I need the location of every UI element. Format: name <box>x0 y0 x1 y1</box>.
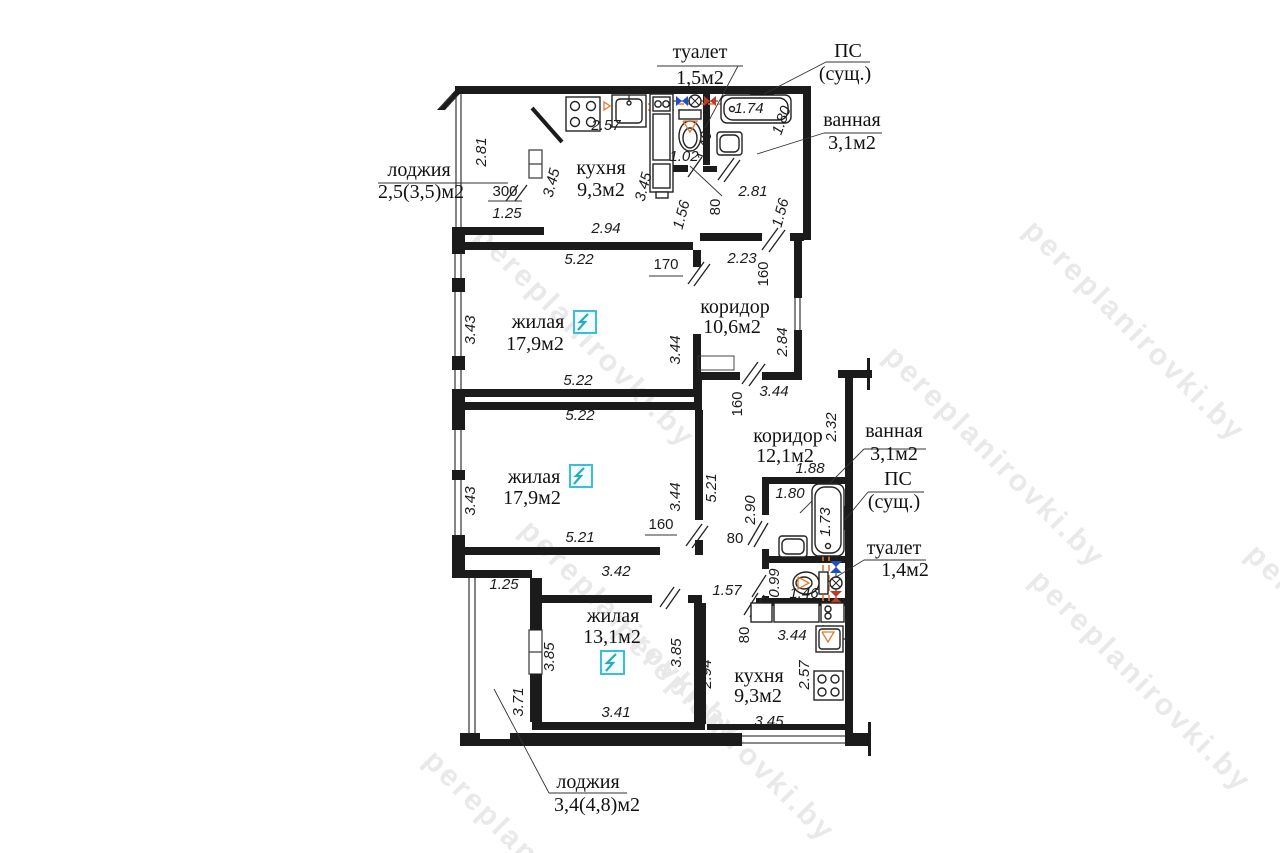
kitchen-sink-bottom-icon <box>816 626 848 652</box>
dimension-label: 3.45 <box>754 713 784 730</box>
dimension-label: 3.45 <box>632 170 656 203</box>
dimension-label: 3.71 <box>510 687 527 716</box>
room-label-wc-bottom: туалет <box>867 537 922 559</box>
dimension-label: 160 <box>729 391 746 416</box>
dimension-label: 5.22 <box>564 251 594 268</box>
dimension-label: 80 <box>707 199 724 216</box>
room-label-living-2: жилая <box>507 466 561 488</box>
dimension-label: 5.22 <box>563 372 593 389</box>
dimension-label: 1.25 <box>489 576 519 593</box>
dimension-label: 3.43 <box>462 315 479 345</box>
dimension-label: 1.74 <box>734 100 763 117</box>
room-area-kitchen-top: 9,3м2 <box>577 179 625 201</box>
watermark-text: pereplanirovki.by <box>1239 538 1280 773</box>
room-area-bath-bottom: 3,1м2 <box>870 443 918 465</box>
dimension-label: 5.21 <box>703 473 720 502</box>
room-area-wc-bottom: 1,4м2 <box>881 559 929 581</box>
dimension-label: 2.57 <box>796 660 813 691</box>
room-area-living-1: 17,9м2 <box>506 333 564 355</box>
room-area-loggia-top: 2,5(3,5)м2 <box>378 181 464 203</box>
dimension-label: 160 <box>648 516 673 533</box>
stove-bottom-icon <box>814 671 843 700</box>
dimension-label: 3.45 <box>540 166 564 199</box>
dimension-label: 2.81 <box>737 183 767 200</box>
dimension-label: 160 <box>755 261 772 286</box>
room-area-kitchen-bottom: 9,3м2 <box>734 685 782 707</box>
dimension-label: 1.25 <box>492 205 522 222</box>
room-area-loggia-bottom: 3,4(4,8)м2 <box>554 794 640 816</box>
dimension-label: 1.73 <box>817 507 834 537</box>
watermark-text: pereplanirovki.by <box>1017 214 1252 449</box>
dimension-label: 0.99 <box>766 568 783 598</box>
room-area-corridor-1: 10,6м2 <box>703 316 761 338</box>
room-area-ps-bottom: (сущ.) <box>868 491 920 513</box>
dimension-label: 3.85 <box>541 642 558 672</box>
dimension-label: 1.56 <box>769 196 793 229</box>
kitchen-cabinets-bottom <box>751 603 844 622</box>
electric-symbol-living-2 <box>570 465 592 487</box>
dimension-label: 1.88 <box>795 460 825 477</box>
dimension-label: 2.90 <box>742 495 759 526</box>
dimension-label: 3.85 <box>668 638 685 668</box>
room-label-loggia-bottom: лоджия <box>556 771 619 793</box>
room-label-kitchen-top: кухня <box>576 157 625 179</box>
dimension-label: 2.84 <box>774 327 791 357</box>
dimension-label: 3.41 <box>601 704 630 721</box>
room-label-ps-top: ПС <box>834 40 862 62</box>
kitchen-corner-diagonal <box>532 108 562 142</box>
electric-symbol-living-3 <box>601 651 624 674</box>
dimension-label: 80 <box>736 627 753 644</box>
dimension-label: 5.22 <box>565 407 595 424</box>
room-label-loggia-top: лоджия <box>387 159 450 181</box>
room-label-corridor-2: коридор <box>753 425 823 447</box>
dimension-label: 3.44 <box>667 335 684 364</box>
dimension-label: 3.44 <box>759 383 788 400</box>
bath-sink-bottom-icon <box>779 536 807 557</box>
room-label-ps-bottom: ПС <box>884 468 912 490</box>
dimension-label: 3.44 <box>777 627 806 644</box>
dimension-label: 2.32 <box>823 412 840 443</box>
watermark-text: pereplanirovki.by <box>1023 564 1258 799</box>
dimension-label: 2.94 <box>698 659 715 689</box>
dimension-label: 2.81 <box>473 137 490 167</box>
dimension-label: 5.21 <box>565 529 594 546</box>
dimension-label: 3.42 <box>601 563 631 580</box>
dimension-label: 170 <box>653 256 678 273</box>
room-label-living-1: жилая <box>511 311 565 333</box>
room-area-living-3: 13,1м2 <box>583 626 641 648</box>
floor-plan-page: pereplanirovki.bypereplanirovki.byperepl… <box>0 0 1280 853</box>
dimension-label: 300 <box>492 183 517 200</box>
room-label-bath-bottom: ванная <box>865 420 923 442</box>
dimension-label: 1.56 <box>670 198 694 231</box>
dimension-label: 80 <box>727 530 744 547</box>
room-label-wc-top: туалет <box>673 41 728 63</box>
electric-symbol-living-1 <box>574 311 596 333</box>
room-label-bath-top: ванная <box>823 109 881 131</box>
dimension-label: 3.43 <box>462 486 479 516</box>
room-label-kitchen-bottom: кухня <box>734 665 783 687</box>
room-label-corridor-1: коридор <box>700 296 770 318</box>
room-area-bath-top: 3,1м2 <box>828 132 876 154</box>
bath-sink-top-icon <box>717 132 742 155</box>
dimension-label: 1.80 <box>775 485 805 502</box>
dimension-label: 3.44 <box>667 482 684 511</box>
dimension-label: 1.46 <box>789 585 819 602</box>
dimension-label: 2.23 <box>726 250 757 267</box>
room-area-living-2: 17,9м2 <box>503 487 561 509</box>
dimension-label: 2.94 <box>590 220 620 237</box>
room-area-wc-top: 1,5м2 <box>676 67 724 89</box>
room-area-ps-top: (сущ.) <box>819 63 871 85</box>
dimension-label: 1.57 <box>712 582 742 599</box>
room-label-living-3: жилая <box>586 605 640 627</box>
dimension-label: 2.57 <box>590 117 621 134</box>
floor-plan-drawing: pereplanirovki.bypereplanirovki.byperepl… <box>0 0 1280 853</box>
